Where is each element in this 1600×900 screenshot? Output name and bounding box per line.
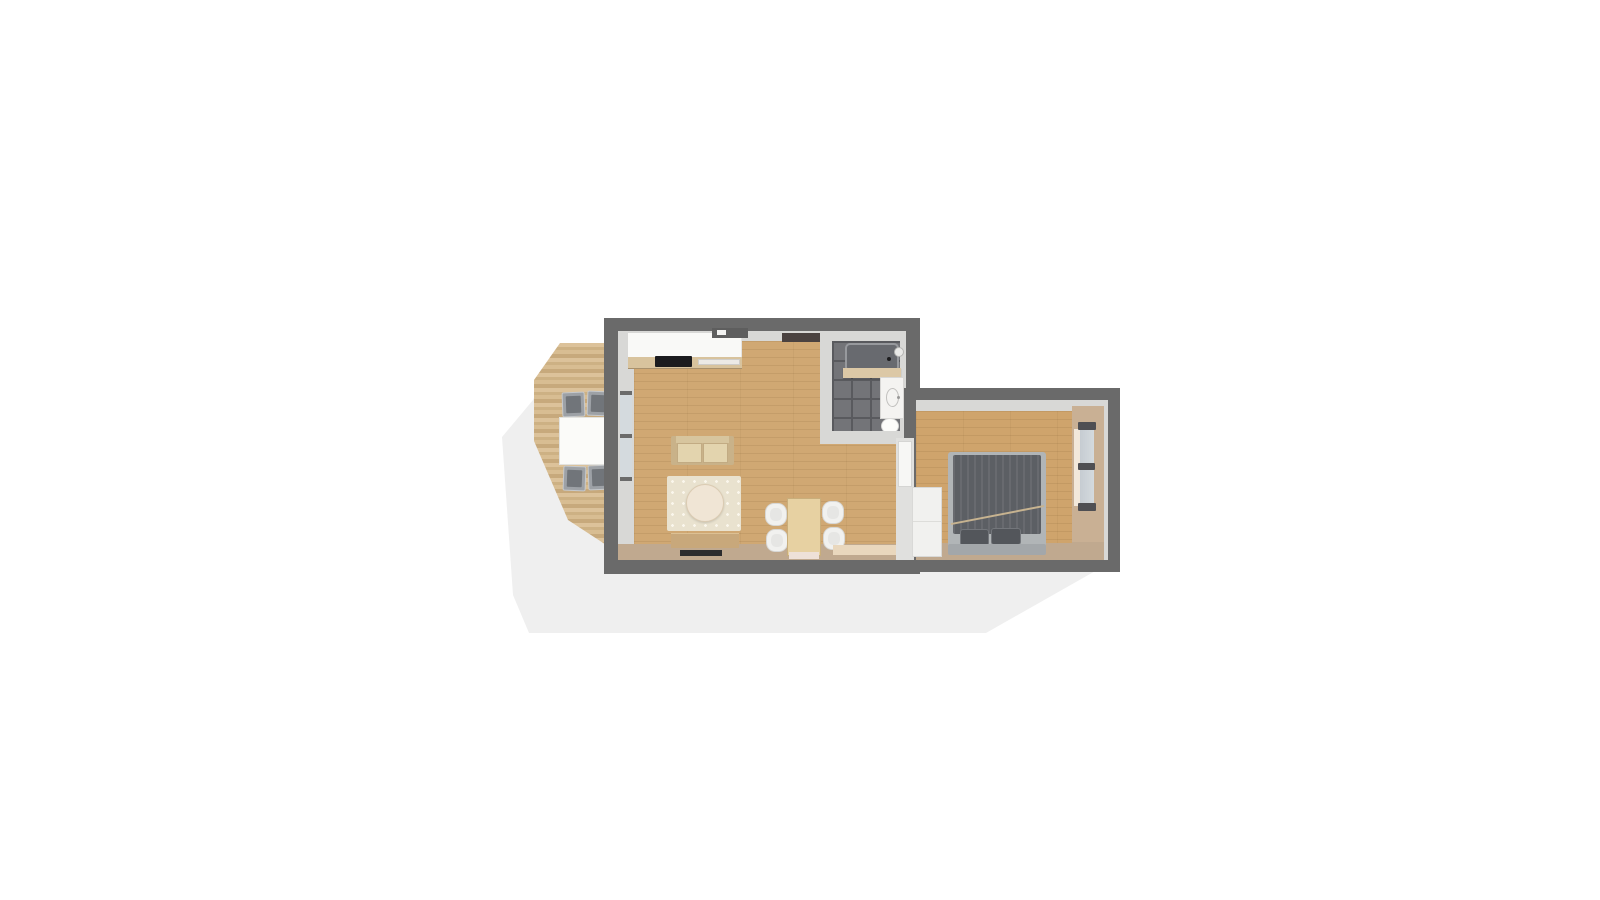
dining-table[interactable] <box>787 498 821 556</box>
table-mat <box>789 552 819 559</box>
outdoor-chair[interactable] <box>562 392 586 418</box>
chair-pad <box>770 508 782 521</box>
window-frame-cap <box>1078 463 1095 470</box>
dining-chair[interactable] <box>822 501 844 524</box>
coffee-table[interactable] <box>686 484 724 522</box>
bathroom-left-wall <box>820 333 832 441</box>
sofa-cushion <box>677 443 702 463</box>
window-frame-cap <box>1078 503 1096 511</box>
living-room-window[interactable] <box>620 391 632 481</box>
entry-doormat <box>833 545 897 555</box>
chair-seat <box>566 396 582 414</box>
faucet-icon <box>897 396 900 399</box>
outdoor-dining-table[interactable] <box>559 417 609 465</box>
bathroom-door-open[interactable] <box>782 333 820 342</box>
shower-drain-icon <box>887 357 891 361</box>
cooktop[interactable] <box>655 356 692 367</box>
window-slit <box>717 330 726 335</box>
sofa-back <box>676 436 729 443</box>
top-wall-window <box>712 328 748 338</box>
double-bed[interactable] <box>948 452 1046 555</box>
tv[interactable] <box>680 550 722 556</box>
dining-chair[interactable] <box>765 503 787 526</box>
chair-pad <box>827 506 839 519</box>
shower-head-icon <box>894 347 904 357</box>
bed-pillow <box>991 528 1021 545</box>
kitchen-sink[interactable] <box>698 359 740 365</box>
sofa[interactable] <box>671 436 734 465</box>
chair-pad <box>828 532 840 545</box>
wardrobe-divider <box>913 521 941 522</box>
bed-headboard <box>948 544 1046 555</box>
bathroom-vanity[interactable] <box>880 377 904 419</box>
floorplan-canvas <box>0 0 1600 900</box>
chair-seat <box>567 470 583 488</box>
sofa-cushion <box>703 443 728 463</box>
chair-pad <box>771 534 783 547</box>
wardrobe[interactable] <box>912 487 942 557</box>
outdoor-chair[interactable] <box>563 466 587 492</box>
tv-stand[interactable] <box>671 533 739 548</box>
dining-chair[interactable] <box>766 529 788 552</box>
window-frame-cap <box>1078 422 1096 430</box>
bed-duvet <box>953 455 1041 534</box>
bedroom-door-open[interactable] <box>898 441 912 487</box>
